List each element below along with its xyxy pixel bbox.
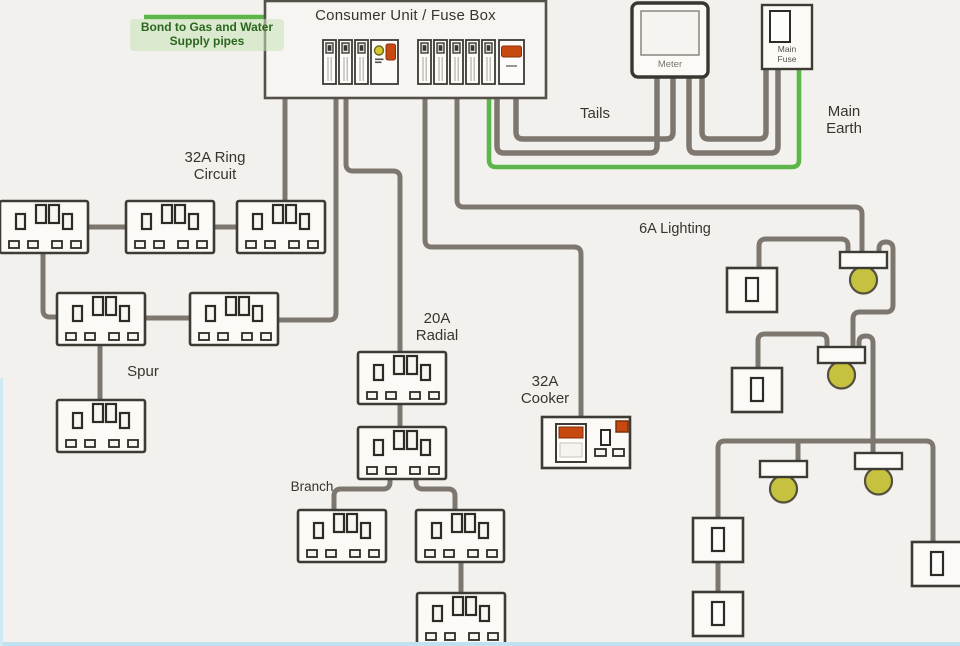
bond-label: Bond to Gas and Water Supply pipes: [130, 19, 284, 51]
radial-socket-2: [358, 427, 446, 479]
main-switch-module: [499, 40, 524, 84]
branch-socket-1: [298, 510, 386, 562]
breaker-2: [339, 40, 352, 84]
ceiling-light-2: [818, 347, 865, 389]
image-edge-bottom: [0, 642, 960, 646]
ceiling-light-3: [760, 461, 807, 503]
breaker-4: [418, 40, 431, 84]
ring-socket-4: [57, 293, 145, 345]
wire-radial-feed: [346, 98, 400, 352]
wire-ring-s1-s4: [43, 253, 57, 317]
ring-socket-5: [190, 293, 278, 345]
breaker-7: [466, 40, 479, 84]
tails-label: Tails: [555, 105, 635, 122]
wire-cooker: [425, 98, 581, 417]
wire-branch-right: [416, 478, 455, 510]
breaker-6: [450, 40, 463, 84]
ceiling-light-1: [840, 252, 887, 294]
wire-tail-4: [702, 70, 766, 139]
light-switch-3: [693, 518, 743, 562]
cooker-control-unit: [542, 417, 630, 468]
radial-socket-1: [358, 352, 446, 404]
ring-circuit-label: 32A Ring Circuit: [165, 149, 265, 184]
branch-socket-2: [416, 510, 504, 562]
breaker-1: [323, 40, 336, 84]
light-switch-5: [693, 592, 743, 636]
ceiling-light-4: [855, 453, 902, 495]
breaker-5: [434, 40, 447, 84]
ring-socket-1: [0, 201, 88, 253]
breaker-8: [482, 40, 495, 84]
ring-socket-2: [126, 201, 214, 253]
ring-socket-3: [237, 201, 325, 253]
breaker-3: [355, 40, 368, 84]
wiring-diagram: Consumer Unit / Fuse Box Bond to Gas and…: [0, 0, 960, 646]
cooker-label: 32A Cooker: [505, 373, 585, 408]
meter-label: Meter: [632, 60, 708, 71]
wire-rose2-switch2: [758, 334, 827, 368]
wire-rose1-switch1: [759, 239, 848, 268]
rcd-module: [371, 40, 398, 84]
lighting-label: 6A Lighting: [625, 221, 725, 238]
light-switch-1: [727, 268, 777, 312]
branch-label: Branch: [277, 479, 347, 495]
light-switch-2: [732, 368, 782, 412]
light-switch-4: [912, 542, 960, 586]
branch-socket-3: [417, 593, 505, 645]
spur-label: Spur: [108, 363, 178, 380]
main-fuse-label: Main Fuse: [764, 44, 810, 64]
diagram-canvas: [0, 0, 960, 646]
image-edge-left: [0, 378, 3, 646]
radial-label: 20A Radial: [397, 310, 477, 345]
consumer-unit-title: Consumer Unit / Fuse Box: [265, 7, 546, 24]
spur-socket: [57, 400, 145, 452]
main-earth-label: Main Earth: [813, 103, 875, 138]
